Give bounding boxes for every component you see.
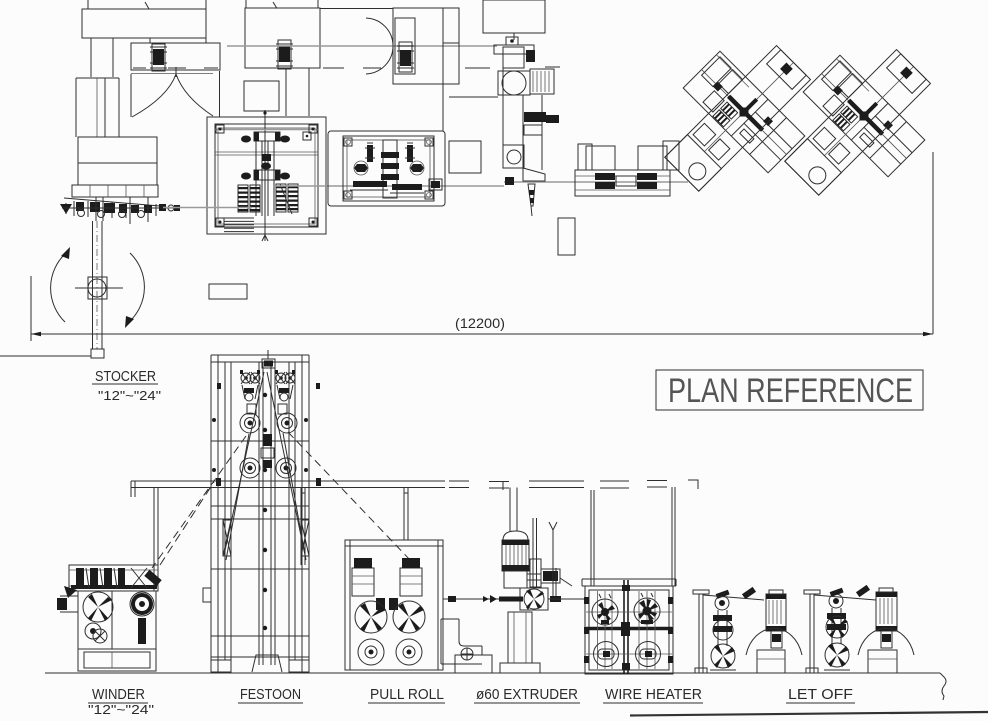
- svg-text:PULL ROLL: PULL ROLL: [370, 686, 444, 703]
- svg-text:WIRE HEATER: WIRE HEATER: [605, 686, 702, 703]
- svg-text:WINDER: WINDER: [92, 686, 145, 703]
- svg-text:FESTOON: FESTOON: [240, 686, 301, 703]
- svg-text:"12"~"24": "12"~"24": [98, 388, 161, 403]
- svg-text:LET OFF: LET OFF: [788, 686, 853, 703]
- svg-text:STOCKER: STOCKER: [95, 368, 156, 385]
- svg-text:PLAN REFERENCE: PLAN REFERENCE: [668, 372, 913, 410]
- svg-text:"12"~"24": "12"~"24": [88, 702, 154, 717]
- svg-text:ø60 EXTRUDER: ø60 EXTRUDER: [476, 686, 578, 703]
- svg-text:(12200): (12200): [455, 315, 505, 331]
